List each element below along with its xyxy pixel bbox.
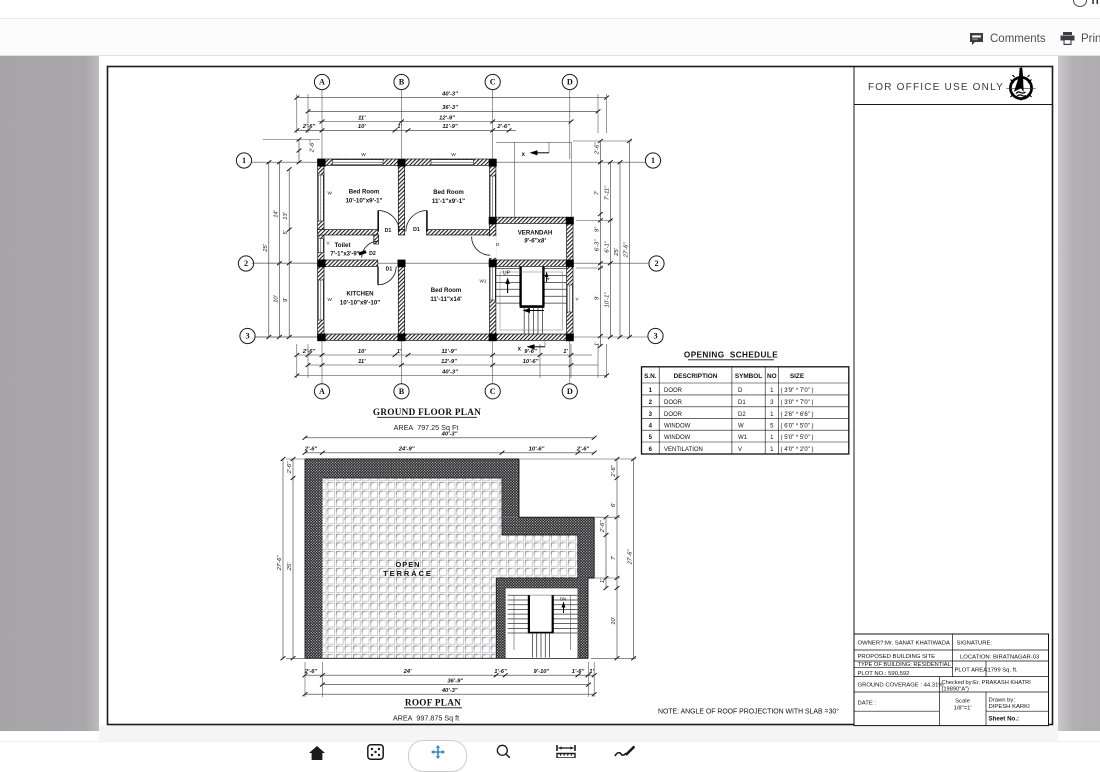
- svg-text:Scale: Scale: [955, 699, 970, 705]
- svg-text:Toilet: Toilet: [334, 242, 350, 249]
- svg-text:10': 10': [611, 616, 617, 624]
- svg-text:UP: UP: [503, 271, 511, 277]
- svg-text:A: A: [319, 387, 325, 396]
- svg-text:GROUND FLOOR PLAN: GROUND FLOOR PLAN: [373, 407, 481, 417]
- svg-text:36'-3": 36'-3": [442, 105, 458, 111]
- svg-text:DN: DN: [560, 596, 566, 601]
- svg-text:7'-1"x3'-9": 7'-1"x3'-9": [330, 252, 359, 258]
- svg-text:10'-1": 10'-1": [604, 292, 610, 308]
- svg-text:25': 25': [263, 243, 269, 252]
- svg-text:WINDOW: WINDOW: [664, 424, 691, 430]
- svg-text:D2: D2: [738, 412, 746, 418]
- svg-text:40'-3": 40'-3": [441, 432, 458, 438]
- svg-text:W: W: [361, 152, 366, 158]
- svg-text:S.N.: S.N.: [644, 373, 657, 380]
- svg-text:2'-6": 2'-6": [576, 447, 590, 453]
- svg-text:2: 2: [654, 259, 658, 268]
- svg-text:6'-1": 6'-1": [604, 240, 610, 252]
- svg-text:10'-10"x9'-1": 10'-10"x9'-1": [345, 198, 382, 205]
- svg-text:(19890"A"): (19890"A"): [942, 687, 970, 693]
- svg-text:2'-6": 2'-6": [302, 124, 316, 130]
- svg-text:2'-6": 2'-6": [594, 142, 600, 155]
- svg-text:1': 1': [397, 349, 402, 355]
- svg-text:A: A: [319, 78, 325, 87]
- svg-text:OPEN: OPEN: [396, 560, 421, 569]
- svg-text:VERANDAH: VERANDAH: [518, 230, 553, 237]
- svg-text:11': 11': [358, 115, 366, 121]
- svg-text:( 4'0" * 2'0" ): ( 4'0" * 2'0" ): [781, 447, 814, 453]
- svg-text:DIPESH KARKI: DIPESH KARKI: [989, 704, 1031, 710]
- svg-text:Bed Room: Bed Room: [433, 189, 464, 196]
- svg-text:Bed Room: Bed Room: [431, 287, 462, 294]
- svg-text:TYPE OF BUILDING: RESIDENTIAL: TYPE OF BUILDING: RESIDENTIAL: [858, 662, 951, 668]
- svg-text:1: 1: [651, 156, 655, 165]
- svg-text:7'-11": 7'-11": [604, 185, 610, 200]
- svg-text:( 5'0" * 5'0" ): ( 5'0" * 5'0" ): [781, 435, 814, 441]
- svg-text:DESCRIPTION: DESCRIPTION: [674, 373, 718, 380]
- svg-text:9'-6"x8': 9'-6"x8': [524, 238, 546, 245]
- svg-text:25': 25': [287, 562, 293, 571]
- svg-text:12'-9": 12'-9": [439, 115, 455, 121]
- svg-text:3: 3: [653, 332, 657, 341]
- svg-text:DOOR: DOOR: [664, 400, 683, 406]
- svg-text:Bed Room: Bed Room: [349, 189, 380, 196]
- svg-text:D1: D1: [386, 267, 393, 273]
- svg-text:1': 1': [563, 349, 568, 355]
- svg-text:40'-3": 40'-3": [441, 688, 458, 694]
- svg-text:2'-6": 2'-6": [310, 140, 316, 153]
- svg-text:B: B: [399, 78, 405, 87]
- svg-text:12'-9": 12'-9": [441, 359, 457, 365]
- svg-text:3: 3: [245, 332, 249, 341]
- svg-text:( 2'6" * 6'6" ): ( 2'6" * 6'6" ): [781, 412, 814, 418]
- svg-text:40'-3": 40'-3": [441, 369, 458, 375]
- svg-text:Sheet No.:: Sheet No.:: [989, 716, 1020, 723]
- svg-text:( 6'0" * 5'0" ): ( 6'0" * 5'0" ): [781, 424, 814, 430]
- svg-text:W1: W1: [480, 279, 487, 284]
- svg-text:10': 10': [358, 124, 366, 130]
- svg-text:10'-10"x9'-10": 10'-10"x9'-10": [340, 300, 381, 307]
- svg-text:KITCHEN: KITCHEN: [346, 291, 373, 298]
- svg-text:D1: D1: [738, 400, 746, 406]
- svg-text:DOOR: DOOR: [664, 388, 683, 394]
- svg-text:W1: W1: [738, 435, 748, 441]
- svg-text:AREA 997.875 Sq ft: AREA 997.875 Sq ft: [393, 714, 459, 723]
- svg-text:24'-9": 24'-9": [398, 447, 415, 453]
- svg-text:OWNER?:Mr. SANAT KHATIWADA: OWNER?:Mr. SANAT KHATIWADA: [858, 641, 950, 647]
- svg-text:2'-6": 2'-6": [611, 464, 617, 477]
- svg-text:NO: NO: [767, 373, 777, 380]
- svg-text:NOTE: ANGLE OF ROOF PROJECTION: NOTE: ANGLE OF ROOF PROJECTION WITH SLAB…: [658, 708, 839, 716]
- svg-text:24': 24': [403, 669, 412, 675]
- svg-text:1'-6": 1'-6": [494, 669, 507, 675]
- svg-text:VENTILATION: VENTILATION: [664, 447, 703, 453]
- svg-text:11'-9": 11'-9": [442, 124, 458, 130]
- svg-text:B: B: [399, 387, 405, 396]
- svg-text:11'-11"x14': 11'-11"x14': [430, 296, 462, 303]
- svg-text:D1: D1: [385, 228, 392, 234]
- svg-text:SYMBOL: SYMBOL: [735, 373, 762, 380]
- svg-text:W: W: [738, 424, 744, 430]
- svg-text:SIZE: SIZE: [790, 373, 805, 380]
- svg-text:C: C: [490, 387, 496, 396]
- svg-text:25': 25': [614, 247, 620, 256]
- svg-text:27'-6": 27'-6": [628, 549, 634, 566]
- svg-text:10': 10': [273, 294, 279, 302]
- svg-text:D: D: [738, 388, 743, 394]
- svg-text:SIGNATURE:: SIGNATURE:: [957, 641, 993, 647]
- svg-text:DOOR: DOOR: [664, 412, 683, 418]
- svg-text:10'-6": 10'-6": [529, 447, 545, 453]
- svg-text:2'-6": 2'-6": [287, 461, 293, 474]
- svg-text:2'-6": 2'-6": [304, 447, 318, 453]
- svg-text:1: 1: [242, 156, 246, 165]
- svg-text:( 3'0" * 7'0" ): ( 3'0" * 7'0" ): [781, 400, 814, 406]
- svg-text:D: D: [567, 78, 573, 87]
- svg-text:W: W: [328, 191, 333, 196]
- svg-text:C: C: [490, 78, 496, 87]
- svg-text:OPENING SCHEDULE: OPENING SCHEDULE: [684, 351, 778, 360]
- svg-text:1': 1': [397, 124, 402, 130]
- svg-text:D1: D1: [413, 227, 420, 233]
- svg-text:2'-6": 2'-6": [304, 669, 318, 675]
- svg-text:GROUND COVERAGE : 44.31%: GROUND COVERAGE : 44.31%: [858, 683, 945, 689]
- svg-text:PLOT AREA:: PLOT AREA:: [955, 668, 990, 674]
- svg-text:Drawn by:: Drawn by:: [989, 698, 1016, 704]
- svg-text:W: W: [451, 152, 456, 158]
- svg-text:10'-6": 10'-6": [523, 359, 539, 365]
- svg-text:2: 2: [244, 259, 248, 268]
- svg-text:W: W: [328, 297, 333, 302]
- svg-text:27'-6": 27'-6": [623, 242, 629, 259]
- svg-text:40'-3": 40'-3": [441, 91, 458, 97]
- svg-text:WINDOW: WINDOW: [664, 435, 691, 441]
- svg-text:1799 Sq. ft.: 1799 Sq. ft.: [988, 668, 1018, 674]
- svg-text:13': 13': [283, 211, 289, 219]
- svg-text:9'-6": 9'-6": [524, 349, 537, 355]
- svg-text:14': 14': [273, 209, 279, 217]
- svg-text:LOCATION: BIRATNAGAR-03: LOCATION: BIRATNAGAR-03: [960, 654, 1040, 660]
- svg-text:1': 1': [589, 669, 594, 675]
- svg-text:DATE :: DATE :: [858, 701, 877, 707]
- svg-text:2'-6": 2'-6": [302, 349, 316, 355]
- svg-text:9": 9": [594, 226, 600, 232]
- svg-text:Checked by:Er. PRAKASH KHATRI: Checked by:Er. PRAKASH KHATRI: [942, 680, 1032, 686]
- svg-text:ROOF PLAN: ROOF PLAN: [405, 698, 461, 708]
- svg-text:11'-1"x9'-1": 11'-1"x9'-1": [432, 198, 465, 205]
- svg-text:4': 4': [546, 276, 551, 280]
- svg-text:2'-6": 2'-6": [600, 520, 606, 533]
- svg-text:36'-9": 36'-9": [447, 678, 463, 684]
- svg-text:TERRACE: TERRACE: [383, 569, 433, 578]
- svg-text:FOR OFFICE USE ONLY: FOR OFFICE USE ONLY: [868, 82, 1004, 93]
- svg-text:11': 11': [358, 359, 366, 365]
- svg-text:6'-3": 6'-3": [594, 239, 600, 251]
- svg-text:11'-9": 11'-9": [441, 349, 457, 355]
- svg-text:1'-6": 1'-6": [572, 669, 585, 675]
- svg-text:2'-6": 2'-6": [496, 124, 510, 130]
- svg-text:27'-6": 27'-6": [277, 555, 283, 572]
- svg-text:9'-10": 9'-10": [534, 669, 550, 675]
- svg-text:D: D: [567, 387, 573, 396]
- svg-text:( 3'9" * 7'0" ): ( 3'9" * 7'0" ): [781, 388, 814, 394]
- svg-text:PLOT NO.: 590,592: PLOT NO.: 590,592: [858, 671, 910, 677]
- svg-text:D2: D2: [369, 251, 376, 257]
- svg-text:10': 10': [358, 349, 366, 355]
- svg-text:PROPOSED BUILDING SITE: PROPOSED BUILDING SITE: [858, 654, 936, 660]
- svg-text:1/8"=1': 1/8"=1': [953, 706, 971, 712]
- svg-text:V: V: [738, 447, 742, 453]
